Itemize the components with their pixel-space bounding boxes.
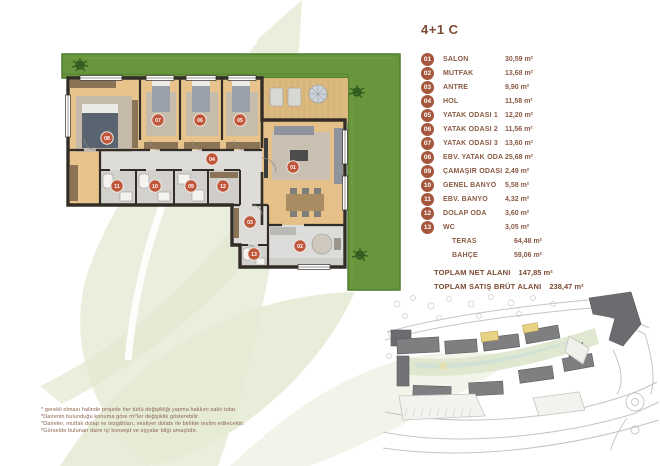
svg-text:12: 12 xyxy=(220,184,226,190)
totals: TOPLAM NET ALANI147,85 m²TOPLAM SATIŞ BR… xyxy=(434,265,584,293)
total-row: TOPLAM NET ALANI147,85 m² xyxy=(434,265,584,279)
brochure-page: 01020304050607080910111213 4+1 C 01SALON… xyxy=(0,0,660,466)
room-marker-02: 02 xyxy=(294,240,306,252)
legend-row: 02MUTFAK13,68 m² xyxy=(421,66,656,80)
room-marker-01: 01 xyxy=(287,161,299,173)
room-area: 64,48 m² xyxy=(514,238,542,245)
svg-text:01: 01 xyxy=(290,165,296,171)
room-area: 11,56 m² xyxy=(505,126,533,133)
room-label: SALON xyxy=(443,56,505,63)
legend-row: TERAS64,48 m² xyxy=(421,234,656,248)
floor-plan: 01020304050607080910111213 xyxy=(48,44,408,296)
legend-row: 05YATAK ODASI 112,20 m² xyxy=(421,108,656,122)
footnote-line: *Daireler, mutfak dolap ve tezgâhları, v… xyxy=(41,421,245,428)
room-number-badge: 04 xyxy=(421,95,434,108)
room-label: YATAK ODASI 2 xyxy=(443,126,505,133)
legend-row: 09ÇAMAŞIR ODASI2,49 m² xyxy=(421,164,656,178)
terrace-deck xyxy=(262,78,348,122)
legend-row: 13WC3,05 m² xyxy=(421,220,656,234)
footnote-line: * gerekli olması halinde projede her tür… xyxy=(41,407,245,414)
room-label: ÇAMAŞIR ODASI xyxy=(443,168,505,175)
legend-row: 03ANTRE9,90 m² xyxy=(421,80,656,94)
room-number-badge: 09 xyxy=(421,165,434,178)
svg-text:02: 02 xyxy=(297,244,303,250)
room-label: ANTRE xyxy=(443,84,505,91)
svg-text:09: 09 xyxy=(188,184,194,190)
legend-row: BAHÇE59,06 m² xyxy=(421,248,656,262)
total-value: 147,85 m² xyxy=(519,268,553,277)
room-number-badge: 10 xyxy=(421,179,434,192)
room-area: 59,06 m² xyxy=(514,252,542,259)
room-label: MUTFAK xyxy=(443,70,505,77)
legend: 01SALON30,59 m²02MUTFAK13,68 m²03ANTRE9,… xyxy=(421,52,656,262)
room-area: 3,05 m² xyxy=(505,224,529,231)
room-label: TERAS xyxy=(452,238,514,245)
room-marker-09: 09 xyxy=(185,180,197,192)
svg-text:10: 10 xyxy=(152,184,158,190)
room-area: 13,60 m² xyxy=(505,140,533,147)
room-area: 9,90 m² xyxy=(505,84,529,91)
svg-text:08: 08 xyxy=(104,136,110,142)
room-marker-03: 03 xyxy=(244,216,256,228)
room-marker-11: 11 xyxy=(111,180,123,192)
legend-row: 04HOL11,58 m² xyxy=(421,94,656,108)
total-label: TOPLAM NET ALANI xyxy=(434,268,511,277)
legend-row: 06YATAK ODASI 211,56 m² xyxy=(421,122,656,136)
room-number-badge: 07 xyxy=(421,137,434,150)
site-plan-map[interactable] xyxy=(383,290,660,462)
room-area: 25,68 m² xyxy=(505,154,533,161)
room-marker-04: 04 xyxy=(206,153,218,165)
legend-row: 10GENEL BANYO5,58 m² xyxy=(421,178,656,192)
room-marker-13: 13 xyxy=(248,248,260,260)
room-label: WC xyxy=(443,224,505,231)
room-number-badge: 06 xyxy=(421,123,434,136)
unit-type-title: 4+1 C xyxy=(421,22,459,37)
svg-text:03: 03 xyxy=(247,220,253,226)
svg-text:04: 04 xyxy=(209,157,215,163)
svg-text:06: 06 xyxy=(197,118,203,124)
room-number-badge: 02 xyxy=(421,67,434,80)
room-number-badge: 01 xyxy=(421,53,434,66)
legend-row: 12DOLAP ODA3,60 m² xyxy=(421,206,656,220)
room-marker-05: 05 xyxy=(234,114,246,126)
svg-text:05: 05 xyxy=(237,118,243,124)
footnote-line: *Dairenin bulunduğu konuma göre m²'ler d… xyxy=(41,414,245,421)
site-roundabout xyxy=(611,393,644,450)
room-marker-07: 07 xyxy=(152,114,164,126)
room-label: HOL xyxy=(443,98,505,105)
room-label: BAHÇE xyxy=(452,252,514,259)
legend-row: 08EBV. YATAK ODA25,68 m² xyxy=(421,150,656,164)
svg-text:11: 11 xyxy=(114,184,120,190)
room-number-badge: 11 xyxy=(421,193,434,206)
legend-row: 07YATAK ODASI 313,60 m² xyxy=(421,136,656,150)
footnotes: * gerekli olması halinde projede her tür… xyxy=(41,407,245,435)
svg-text:13: 13 xyxy=(251,252,257,258)
room-label: YATAK ODASI 3 xyxy=(443,140,505,147)
room-area: 11,58 m² xyxy=(505,98,533,105)
room-area: 3,60 m² xyxy=(505,210,529,217)
room-area: 30,59 m² xyxy=(505,56,533,63)
room-label: EBV. YATAK ODA xyxy=(443,154,505,161)
room-number-badge: 05 xyxy=(421,109,434,122)
room-area: 12,20 m² xyxy=(505,112,533,119)
legend-row: 11EBV. BANYO4,32 m² xyxy=(421,192,656,206)
svg-text:07: 07 xyxy=(155,118,161,124)
room-label: YATAK ODASI 1 xyxy=(443,112,505,119)
legend-row: 01SALON30,59 m² xyxy=(421,52,656,66)
room-marker-08: 08 xyxy=(101,132,113,144)
room-number-badge: 08 xyxy=(421,151,434,164)
room-marker-06: 06 xyxy=(194,114,206,126)
room-area: 4,32 m² xyxy=(505,196,529,203)
room-number-badge: 03 xyxy=(421,81,434,94)
room-marker-12: 12 xyxy=(217,180,229,192)
room-area: 2,49 m² xyxy=(505,168,529,175)
room-area: 13,68 m² xyxy=(505,70,533,77)
room-label: GENEL BANYO xyxy=(443,182,505,189)
room-number-badge: 13 xyxy=(421,221,434,234)
room-area: 5,58 m² xyxy=(505,182,529,189)
room-marker-10: 10 xyxy=(149,180,161,192)
room-label: DOLAP ODA xyxy=(443,210,505,217)
room-label: EBV. BANYO xyxy=(443,196,505,203)
footnote-line: *Görselde bulunan daire içi konsept ve e… xyxy=(41,428,245,435)
room-number-badge: 12 xyxy=(421,207,434,220)
